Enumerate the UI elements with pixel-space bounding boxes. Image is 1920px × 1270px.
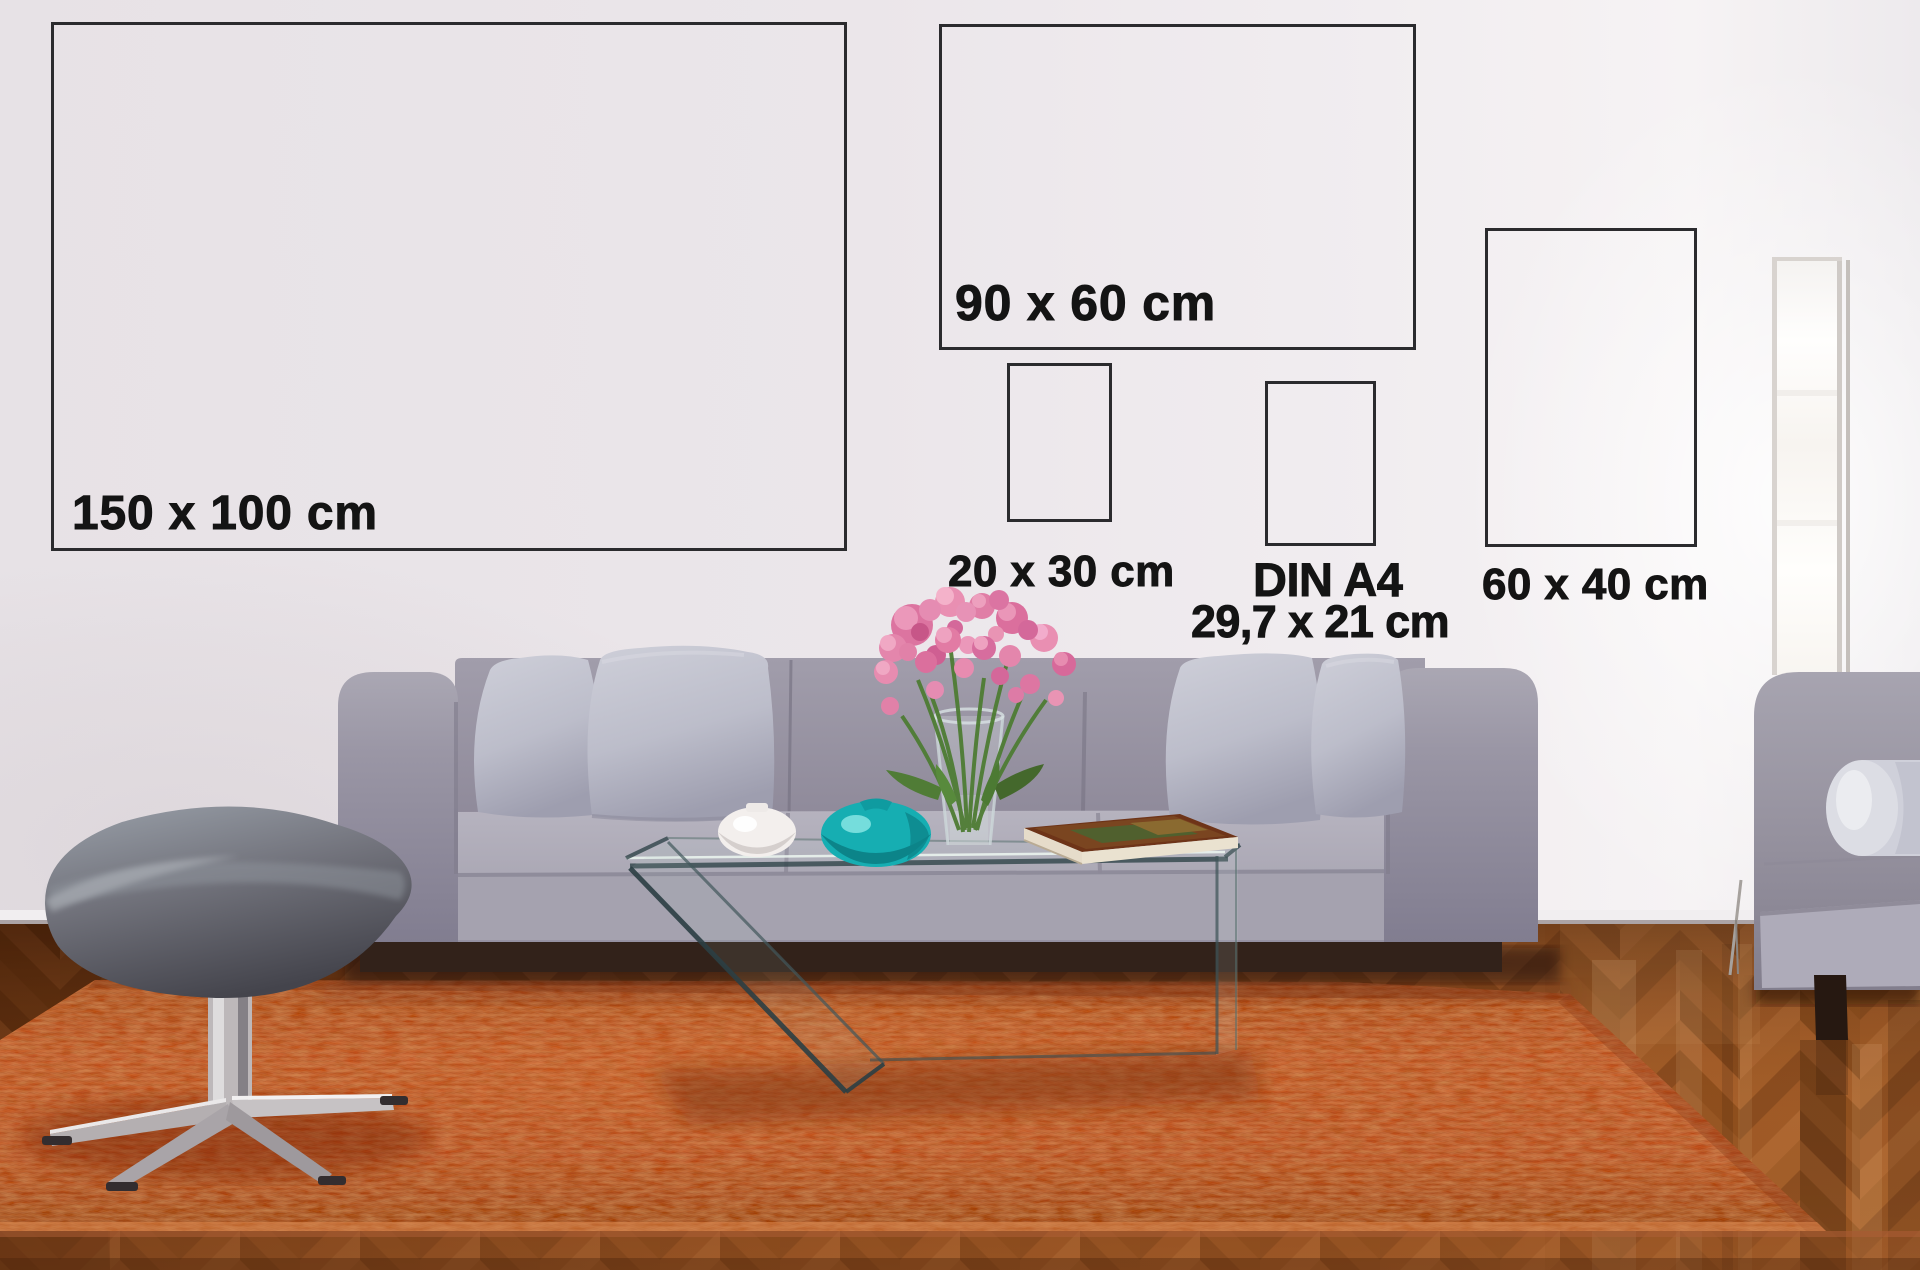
svg-text:60 x 40 cm: 60 x 40 cm <box>1482 560 1709 609</box>
svg-text:29,7 x 21 cm: 29,7 x 21 cm <box>1191 596 1449 647</box>
svg-text:90 x 60 cm: 90 x 60 cm <box>955 275 1216 331</box>
svg-text:20 x 30 cm: 20 x 30 cm <box>948 547 1175 596</box>
svg-text:150 x 100 cm: 150 x 100 cm <box>72 487 378 540</box>
